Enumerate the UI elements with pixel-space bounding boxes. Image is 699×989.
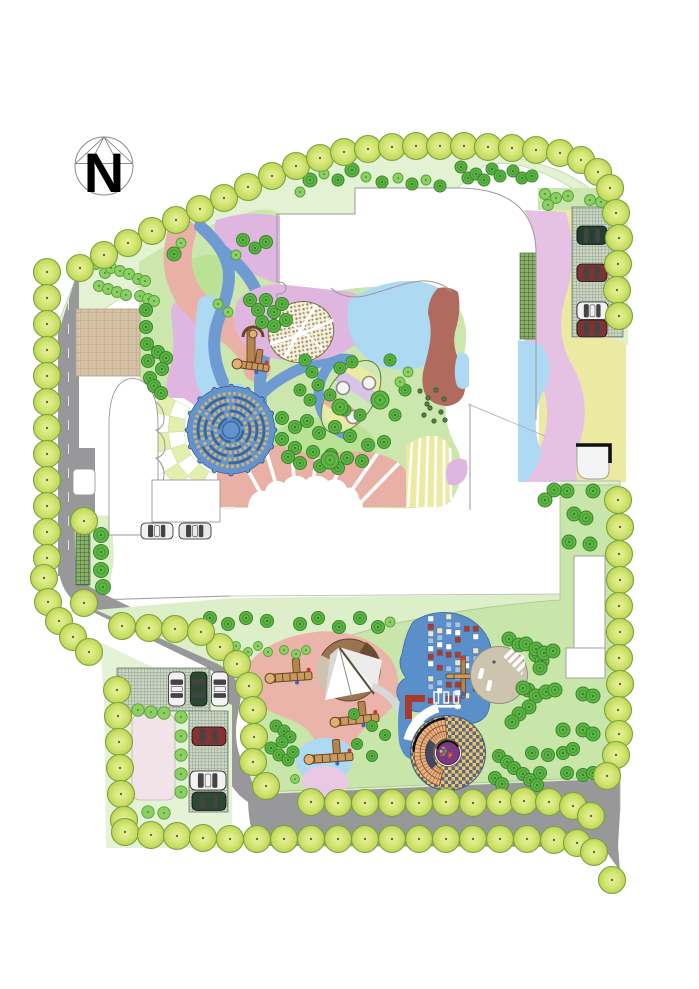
svg-text:N: N bbox=[84, 141, 124, 204]
